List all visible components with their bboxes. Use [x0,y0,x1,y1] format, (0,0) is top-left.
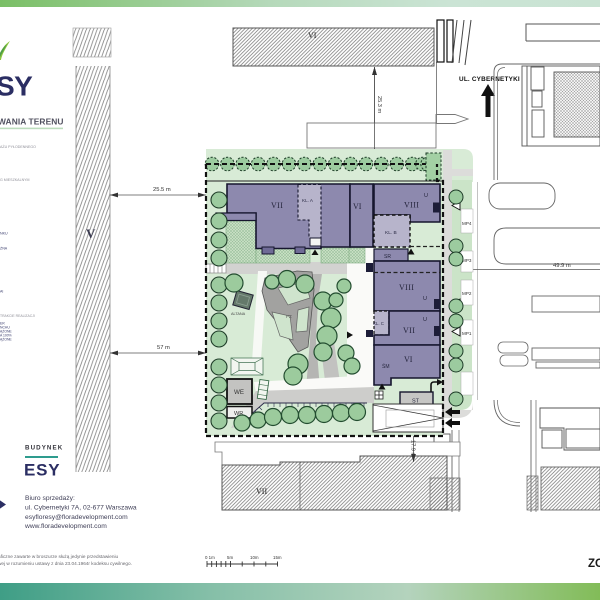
svg-text:10m: 10m [250,555,259,560]
svg-text:V: V [86,226,96,241]
svg-text:www.floradevelopment.com: www.floradevelopment.com [24,523,107,530]
svg-text:G MIESZKALNYM: G MIESZKALNYM [0,178,30,182]
svg-text:U: U [423,317,427,323]
svg-text:ALTANA: ALTANA [231,312,246,316]
svg-text:15m: 15m [273,555,282,560]
svg-text:WANIA TERENU: WANIA TERENU [0,117,64,127]
svg-text:17.9 m: 17.9 m [410,440,416,457]
svg-text:ESY: ESY [24,461,60,480]
svg-text:WE: WE [234,389,244,396]
svg-text:VII: VII [403,326,415,335]
svg-text:SY: SY [0,71,33,102]
svg-text:VI: VI [308,31,317,40]
svg-text:esyfloresy@floradevelopment.co: esyfloresy@floradevelopment.com [25,514,128,521]
svg-text:MP4: MP4 [462,221,472,226]
svg-text:KL. C: KL. C [373,321,384,326]
svg-text:VIII: VIII [399,283,414,292]
svg-text:AŻU PYŁODENNEGO: AŻU PYŁODENNEGO [0,144,36,149]
svg-text:KL. B: KL. B [385,230,397,236]
svg-text:wej w rozumieniu ustawy z dnia: wej w rozumieniu ustawy z dnia 23.04.196… [0,561,132,566]
svg-text:ZO: ZO [588,558,600,570]
svg-text:Biuro sprzedaży:: Biuro sprzedaży: [25,495,75,502]
svg-text:ŚM: ŚM [382,362,390,370]
svg-text:VI: VI [353,202,362,211]
svg-text:UL. CYBERNETYKI: UL. CYBERNETYKI [459,76,520,83]
svg-text:25.3 m: 25.3 m [376,96,382,113]
svg-text:AI: AI [0,290,3,294]
svg-text:5m: 5m [227,555,233,560]
svg-text:VII: VII [271,201,283,210]
svg-text:BUDYNEK: BUDYNEK [25,445,63,452]
svg-text:KL. A: KL. A [302,198,314,203]
svg-text:49.9 m: 49.9 m [553,263,571,269]
svg-text:U: U [424,193,428,199]
svg-text:U: U [423,296,427,302]
svg-text:ĄŻONE: ĄŻONE [0,337,12,342]
svg-text:MP2: MP2 [462,291,472,296]
svg-text:ul. Cybernetyki 7A, 02-677 War: ul. Cybernetyki 7A, 02-677 Warszawa [25,505,137,512]
svg-text:SR: SR [384,254,391,260]
svg-text:aficzne zawarte w broszurze sł: aficzne zawarte w broszurze służą jedyni… [0,554,119,559]
svg-text:NKU: NKU [0,232,8,236]
svg-text:ŻNA: ŻNA [0,246,8,251]
svg-text:PZ: PZ [286,314,292,319]
svg-text:MP1: MP1 [462,331,472,336]
svg-text:TRAKCIE REALIZACJI: TRAKCIE REALIZACJI [0,314,35,318]
svg-text:57 m: 57 m [157,345,170,351]
svg-text:VI: VI [404,355,413,364]
svg-text:VIII: VIII [404,201,419,210]
svg-text:VII: VII [256,487,267,496]
svg-text:0 1m: 0 1m [205,555,215,560]
svg-text:25.5 m: 25.5 m [153,187,171,193]
